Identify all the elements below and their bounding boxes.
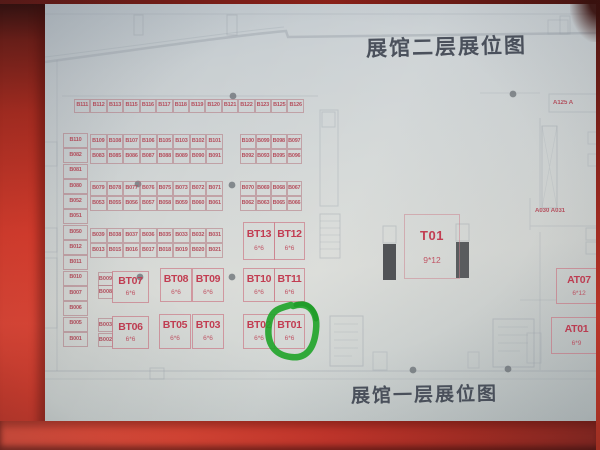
booth-cell: B007 — [63, 286, 88, 301]
booth-cell: B116 — [140, 99, 156, 113]
booth-cell: B060 — [190, 196, 207, 211]
booth-cell: B019 — [173, 243, 190, 258]
booth-cell: B001 — [63, 332, 88, 347]
booth-row: B109B108B107B106B105B103B102B101 — [90, 134, 223, 149]
booth-label: BT13 — [247, 229, 271, 240]
booth-cell: B031 — [206, 228, 223, 243]
floorplan-photo: 展馆二层展位图 展馆一层展位图 B111B112B113B115B116B117… — [0, 0, 600, 450]
booth-cell: B078 — [107, 181, 124, 196]
booth-size: 6*6 — [126, 337, 136, 344]
booth-cell: B079 — [90, 181, 107, 196]
booth-cell: B108 — [107, 134, 124, 149]
booth-cell: B115 — [123, 99, 139, 113]
booth-size: 6*6 — [203, 336, 213, 343]
booth-cell: B086 — [123, 149, 140, 164]
booth-cell: B097 — [287, 134, 303, 149]
booth-cell: B077 — [123, 181, 140, 196]
booth-cell: B126 — [287, 99, 303, 113]
booth-size: 6*6 — [203, 290, 213, 297]
booth-cell: B011 — [63, 255, 88, 270]
booth-cell: B107 — [123, 134, 140, 149]
booth-row: B039B038B037B036B035B033B032B031 — [90, 228, 223, 243]
booth-cell: B018 — [157, 243, 174, 258]
title-floor1: 展馆一层展位图 — [351, 379, 498, 409]
booth-cell: B072 — [190, 181, 207, 196]
booth-row: B083B085B086B087B088B089B090B091 — [90, 149, 223, 164]
booth-label: BT09 — [196, 274, 220, 285]
booth-cell: B076 — [140, 181, 157, 196]
booth-bt01: BT01 6*6 — [274, 314, 305, 349]
booth-cell-b002: B002 — [98, 333, 113, 347]
booth-cell: B058 — [157, 196, 174, 211]
booth-label: T01 — [420, 229, 444, 242]
booth-cell: B095 — [271, 149, 287, 164]
booth-cell: B113 — [107, 99, 123, 113]
booth-cell: B038 — [107, 228, 124, 243]
booth-cell: B102 — [190, 134, 207, 149]
booth-cell: B121 — [222, 99, 238, 113]
booth-cell: B093 — [256, 149, 272, 164]
booth-cell-b003: B003 — [98, 318, 113, 332]
booth-size: 6*6 — [126, 291, 136, 298]
booth-label: BT06 — [118, 322, 142, 333]
booth-cell: B085 — [107, 149, 124, 164]
booth-cell: B065 — [271, 196, 287, 211]
booth-cell: B006 — [63, 301, 88, 316]
booth-row-top: B111B112B113B115B116B117B118B119B120B121… — [74, 99, 304, 113]
booth-bt07: BT07 6*6 — [112, 271, 149, 303]
booth-size: 6*6 — [254, 336, 264, 343]
booth-label: AT01 — [565, 324, 589, 335]
booth-at01: AT01 6*9 — [551, 317, 600, 354]
booth-row: B092B093B095B096 — [240, 149, 302, 164]
booth-cell: B059 — [173, 196, 190, 211]
booth-cell: B032 — [190, 228, 207, 243]
booth-cell: B080 — [63, 179, 88, 194]
booth-cell: B101 — [206, 134, 223, 149]
booth-size: 6*9 — [572, 341, 582, 348]
booth-bt06: BT06 6*6 — [112, 316, 149, 349]
booth-cell: B118 — [173, 99, 189, 113]
booth-size: 6*6 — [285, 290, 295, 297]
booth-cell: B122 — [238, 99, 254, 113]
booth-cell: B092 — [240, 149, 256, 164]
booth-cell: B088 — [157, 149, 174, 164]
booth-size: 6*6 — [285, 246, 295, 253]
booth-cell: B062 — [240, 196, 256, 211]
booth-cell: B039 — [90, 228, 107, 243]
booth-cell: B067 — [287, 181, 303, 196]
booth-cell: B075 — [157, 181, 174, 196]
booth-cell: B110 — [63, 133, 88, 148]
title-floor2: 展馆二层展位图 — [366, 29, 528, 63]
booth-cell: B016 — [123, 243, 140, 258]
booth-cell: B052 — [63, 194, 88, 209]
frame-left — [0, 0, 45, 450]
booth-label: BT05 — [163, 320, 187, 331]
booth-cell: B012 — [63, 240, 88, 255]
booth-cell: B061 — [206, 196, 223, 211]
booth-size: 6*6 — [254, 290, 264, 297]
booth-cell: B050 — [63, 225, 88, 240]
booth-cell: B106 — [140, 134, 157, 149]
booth-cell: B051 — [63, 209, 88, 224]
booth-size: 6*6 — [170, 336, 180, 343]
booth-t01: T01 9*12 — [404, 214, 460, 279]
booth-cell: B081 — [63, 164, 88, 179]
booth-row: B053B055B056B057B058B059B060B061 — [90, 196, 223, 211]
booth-cell: B089 — [173, 149, 190, 164]
booth-bt12: BT12 6*6 — [274, 222, 305, 260]
booth-cell: B112 — [90, 99, 106, 113]
booth-cell: B123 — [255, 99, 271, 113]
booth-cell: B055 — [107, 196, 124, 211]
booth-cell: B053 — [90, 196, 107, 211]
booth-cell: B057 — [140, 196, 157, 211]
booth-cell: B005 — [63, 317, 88, 332]
frame-bottom — [0, 421, 600, 450]
booth-cell: B010 — [63, 271, 88, 286]
booth-cell: B091 — [206, 149, 223, 164]
booth-label: BT11 — [278, 274, 302, 285]
booth-cell-b008: B008 — [98, 285, 113, 299]
booth-label: BT03 — [196, 320, 220, 331]
booth-size: 6*12 — [572, 291, 585, 298]
booth-cell: B036 — [140, 228, 157, 243]
booth-label: BT08 — [164, 274, 188, 285]
booth-row: B079B078B077B076B075B073B072B071 — [90, 181, 223, 196]
booth-cell: B120 — [205, 99, 221, 113]
booth-cell: B020 — [190, 243, 207, 258]
booth-cell: B083 — [90, 149, 107, 164]
booth-cell: B069 — [256, 181, 272, 196]
booth-cell: B037 — [123, 228, 140, 243]
booth-cell: B033 — [173, 228, 190, 243]
booth-label: BT01 — [277, 320, 301, 331]
booth-cell: B071 — [206, 181, 223, 196]
booth-at07: AT07 6*12 — [556, 268, 600, 304]
booth-cell: B035 — [157, 228, 174, 243]
booth-cell: B082 — [63, 148, 88, 163]
booth-size: 6*6 — [285, 336, 295, 343]
booth-cell: B063 — [256, 196, 272, 211]
frame-right — [596, 0, 600, 450]
booth-bt10: BT10 6*6 — [243, 268, 275, 302]
booth-size: 6*6 — [254, 246, 264, 253]
booth-cell: B090 — [190, 149, 207, 164]
booth-bt13: BT13 6*6 — [243, 222, 275, 260]
booth-cell: B098 — [271, 134, 287, 149]
booth-cell: B070 — [240, 181, 256, 196]
booth-size: 9*12 — [423, 256, 441, 265]
booth-cell: B015 — [107, 243, 124, 258]
booth-cell: B017 — [140, 243, 157, 258]
booth-cell: B103 — [173, 134, 190, 149]
booth-label: BT07 — [118, 276, 142, 287]
booth-cell: B096 — [287, 149, 303, 164]
booth-size: 6*6 — [171, 290, 181, 297]
booth-cell: B099 — [256, 134, 272, 149]
booth-cell: B087 — [140, 149, 157, 164]
booth-label: BT10 — [247, 274, 271, 285]
booth-row: B013B015B016B017B018B019B020B021 — [90, 243, 223, 258]
booth-cell: B119 — [189, 99, 205, 113]
booth-cell: B125 — [271, 99, 287, 113]
booth-label: BT02 — [247, 320, 271, 331]
booth-cell: B117 — [156, 99, 172, 113]
booth-bt05: BT05 6*6 — [159, 314, 191, 349]
booth-bt03: BT03 6*6 — [192, 314, 224, 349]
frame-corner — [570, 0, 600, 42]
booth-row: B062B063B065B066 — [240, 196, 302, 211]
booth-cell: B111 — [74, 99, 90, 113]
booth-cell: B068 — [271, 181, 287, 196]
booth-cell: B109 — [90, 134, 107, 149]
booth-bt02: BT02 6*6 — [243, 314, 275, 349]
label-a125: A125 A — [553, 100, 597, 106]
booth-bt09: BT09 6*6 — [192, 268, 224, 302]
booth-cell: B066 — [287, 196, 303, 211]
booth-row: B070B069B068B067 — [240, 181, 302, 196]
booth-cell: B105 — [157, 134, 174, 149]
booth-cell: B073 — [173, 181, 190, 196]
label-a030-a031: A030 A031 — [535, 208, 595, 214]
booth-bt08: BT08 6*6 — [160, 268, 192, 302]
frame-top — [0, 0, 600, 4]
booth-left-column: B110B082B081B080B052B051B050B012B011B010… — [63, 133, 88, 347]
booth-cell: B013 — [90, 243, 107, 258]
booth-cell-b009: B009 — [98, 272, 113, 286]
booth-label: BT12 — [277, 229, 301, 240]
booth-row: B100B099B098B097 — [240, 134, 302, 149]
booth-cell: B056 — [123, 196, 140, 211]
booth-label: AT07 — [567, 275, 591, 286]
booth-bt11: BT11 6*6 — [274, 268, 305, 302]
booth-cell: B100 — [240, 134, 256, 149]
booth-cell: B021 — [206, 243, 223, 258]
floorplan-paper — [45, 4, 597, 421]
